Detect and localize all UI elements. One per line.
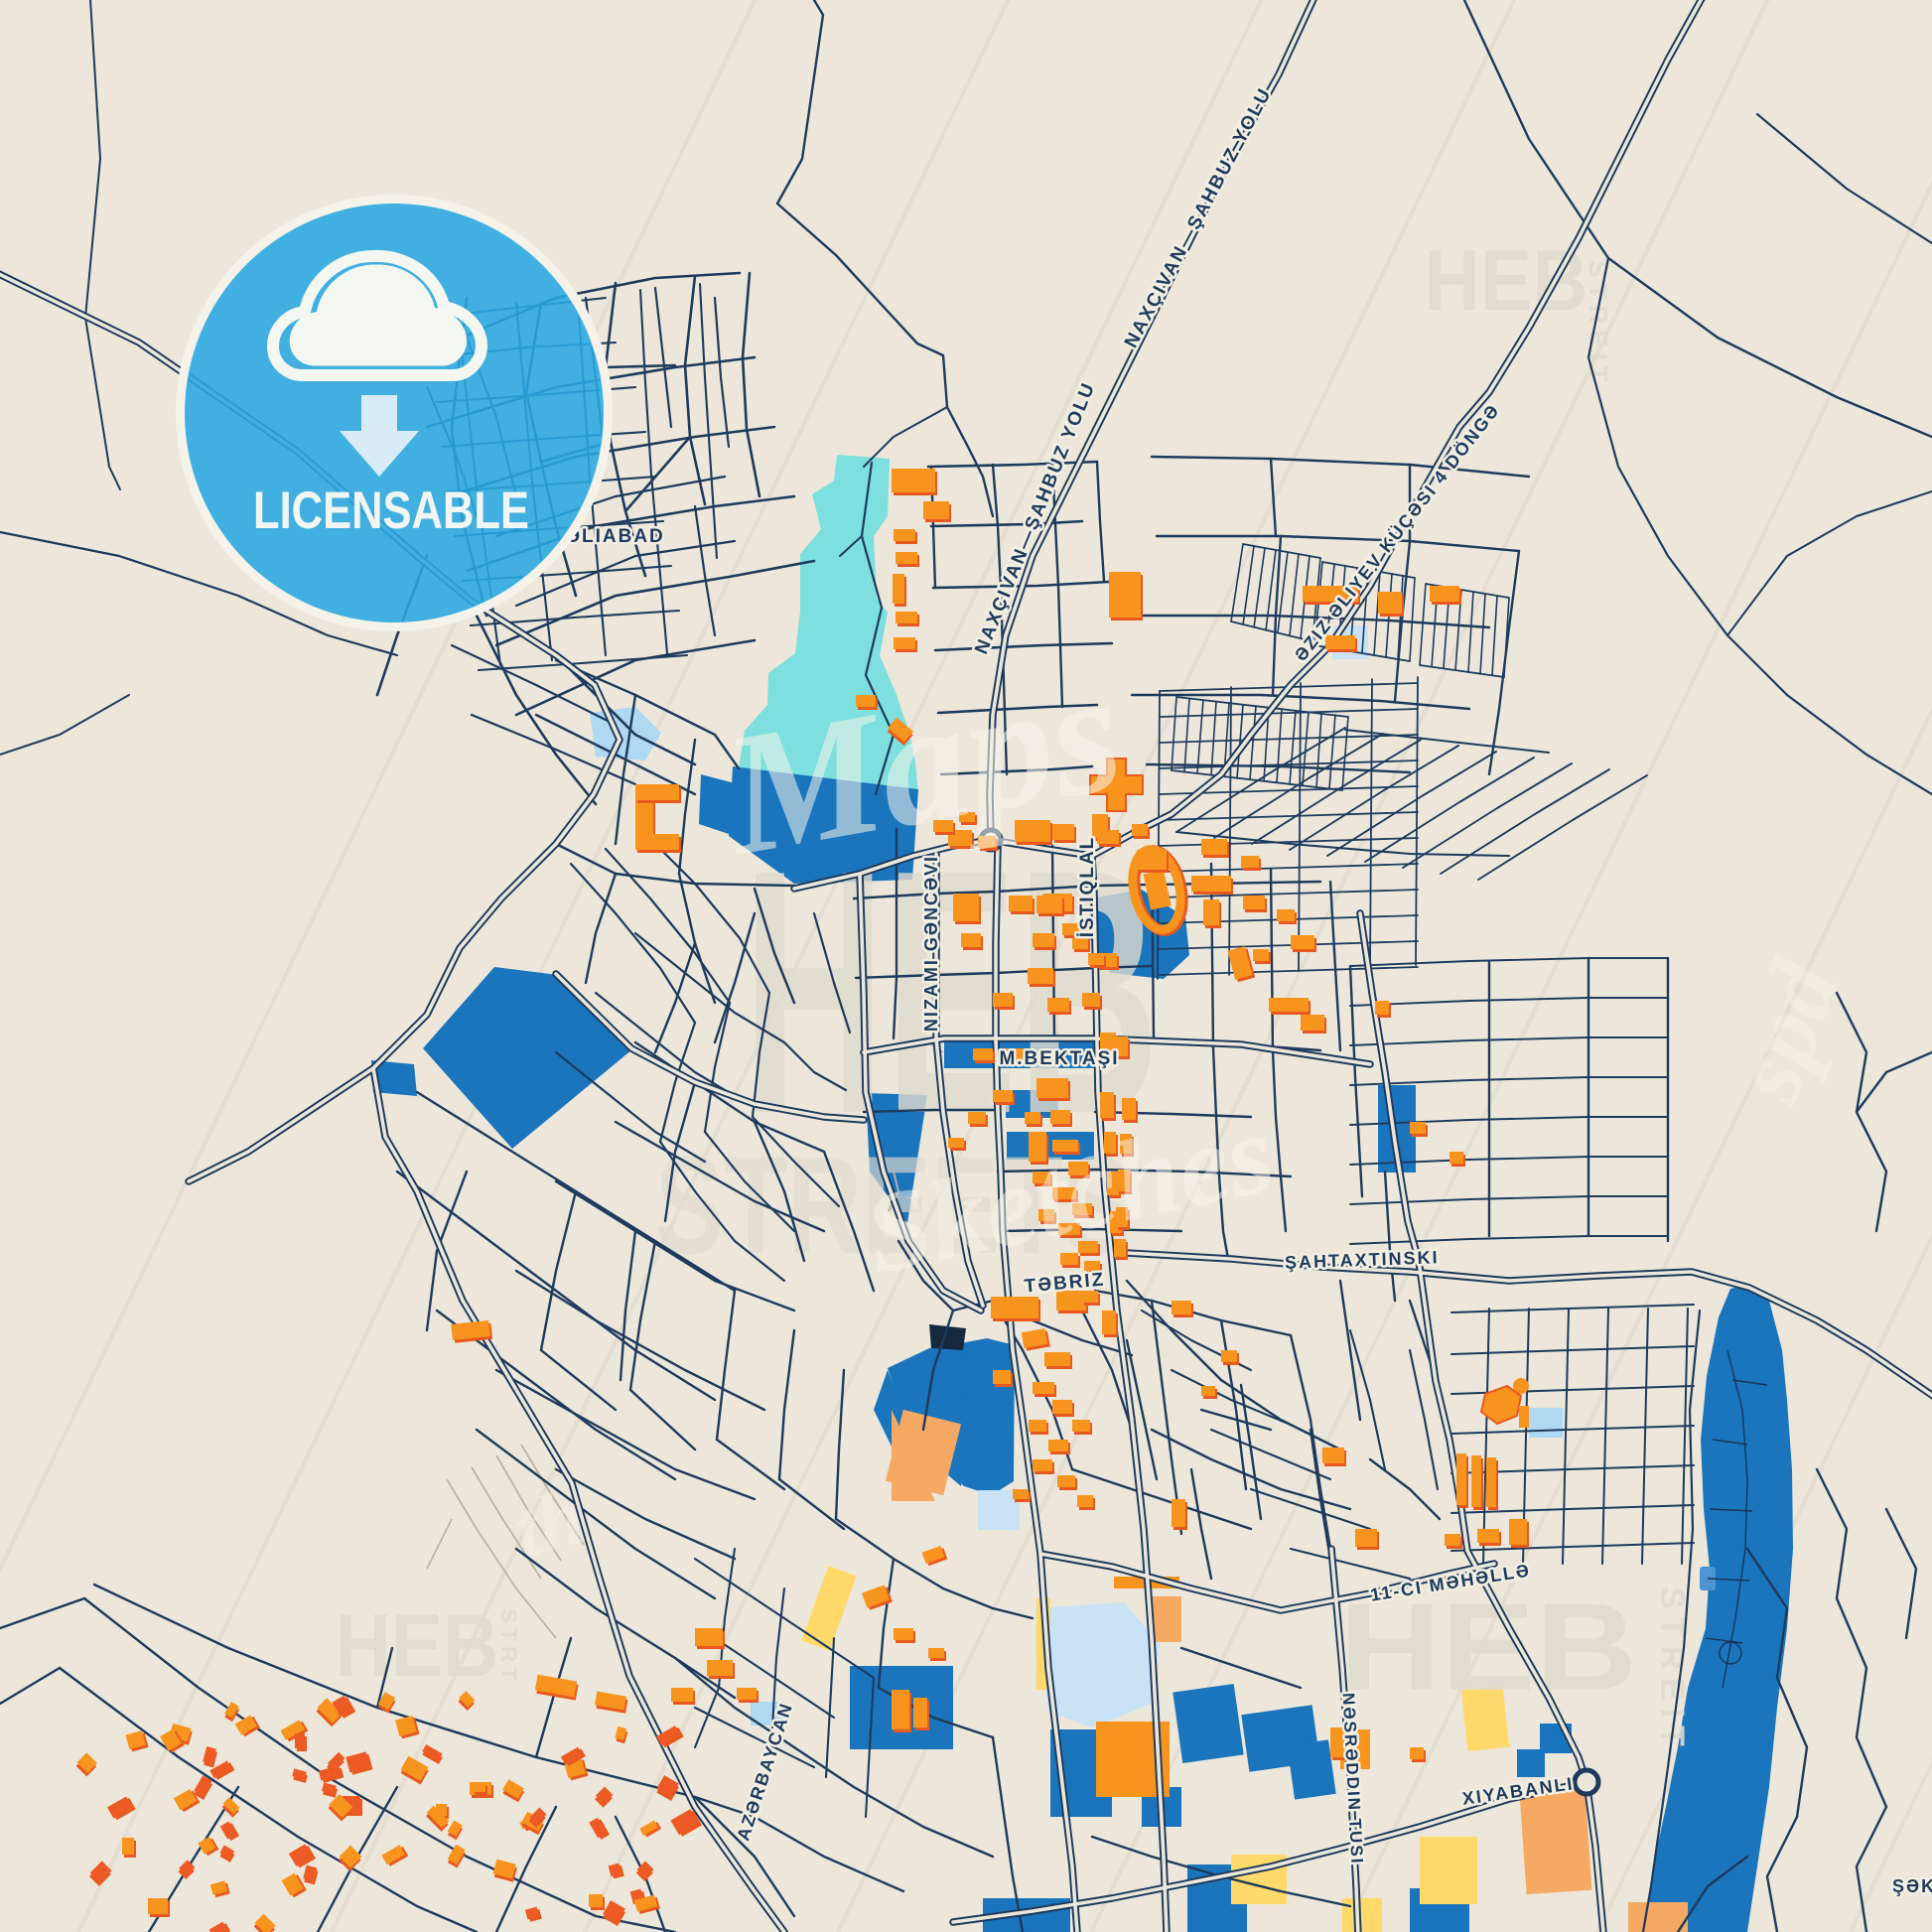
svg-text:HEB: HEB: [336, 1596, 499, 1696]
svg-text:STREIT: STREIT: [1653, 1587, 1691, 1754]
svg-text:LICENSABLE: LICENSABLE: [253, 482, 529, 540]
svg-text:STRT: STRT: [496, 1608, 521, 1685]
svg-text:ŞƏKƏRABA: ŞƏKƏRABA: [1892, 1876, 1932, 1896]
svg-text:ƏLIABAD: ƏLIABAD: [566, 526, 665, 547]
svg-text:HEB: HEB: [1425, 233, 1588, 329]
svg-text:STREIT: STREIT: [1584, 260, 1613, 387]
svg-text:İSTIQLAL: İSTIQLAL: [1077, 836, 1098, 938]
svg-text:NIZAMI GƏNCƏVI: NIZAMI GƏNCƏVI: [921, 855, 941, 1032]
svg-text:M.BEKTAŞI: M.BEKTAŞI: [999, 1048, 1119, 1069]
